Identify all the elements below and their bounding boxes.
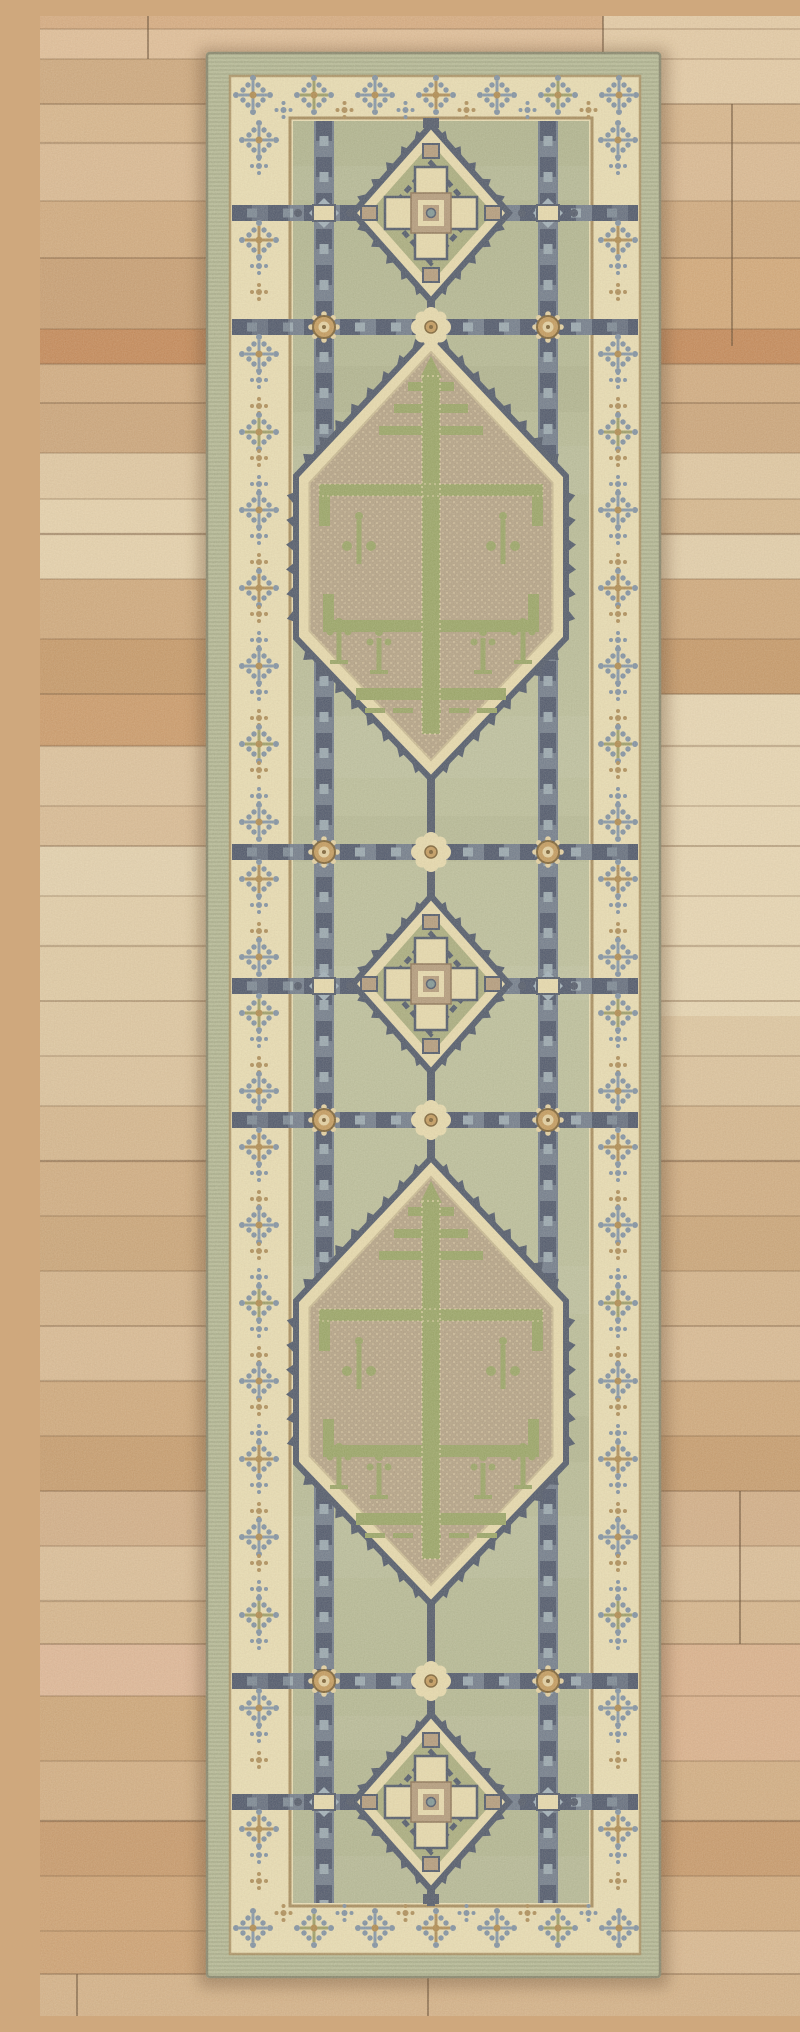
scene-svg: Vintage hand-knotted Oushak-style wool r… [40,16,800,2016]
photo-grain-overlay [40,16,800,2016]
rug-on-floor-photo: Vintage hand-knotted Oushak-style wool r… [40,16,800,2016]
